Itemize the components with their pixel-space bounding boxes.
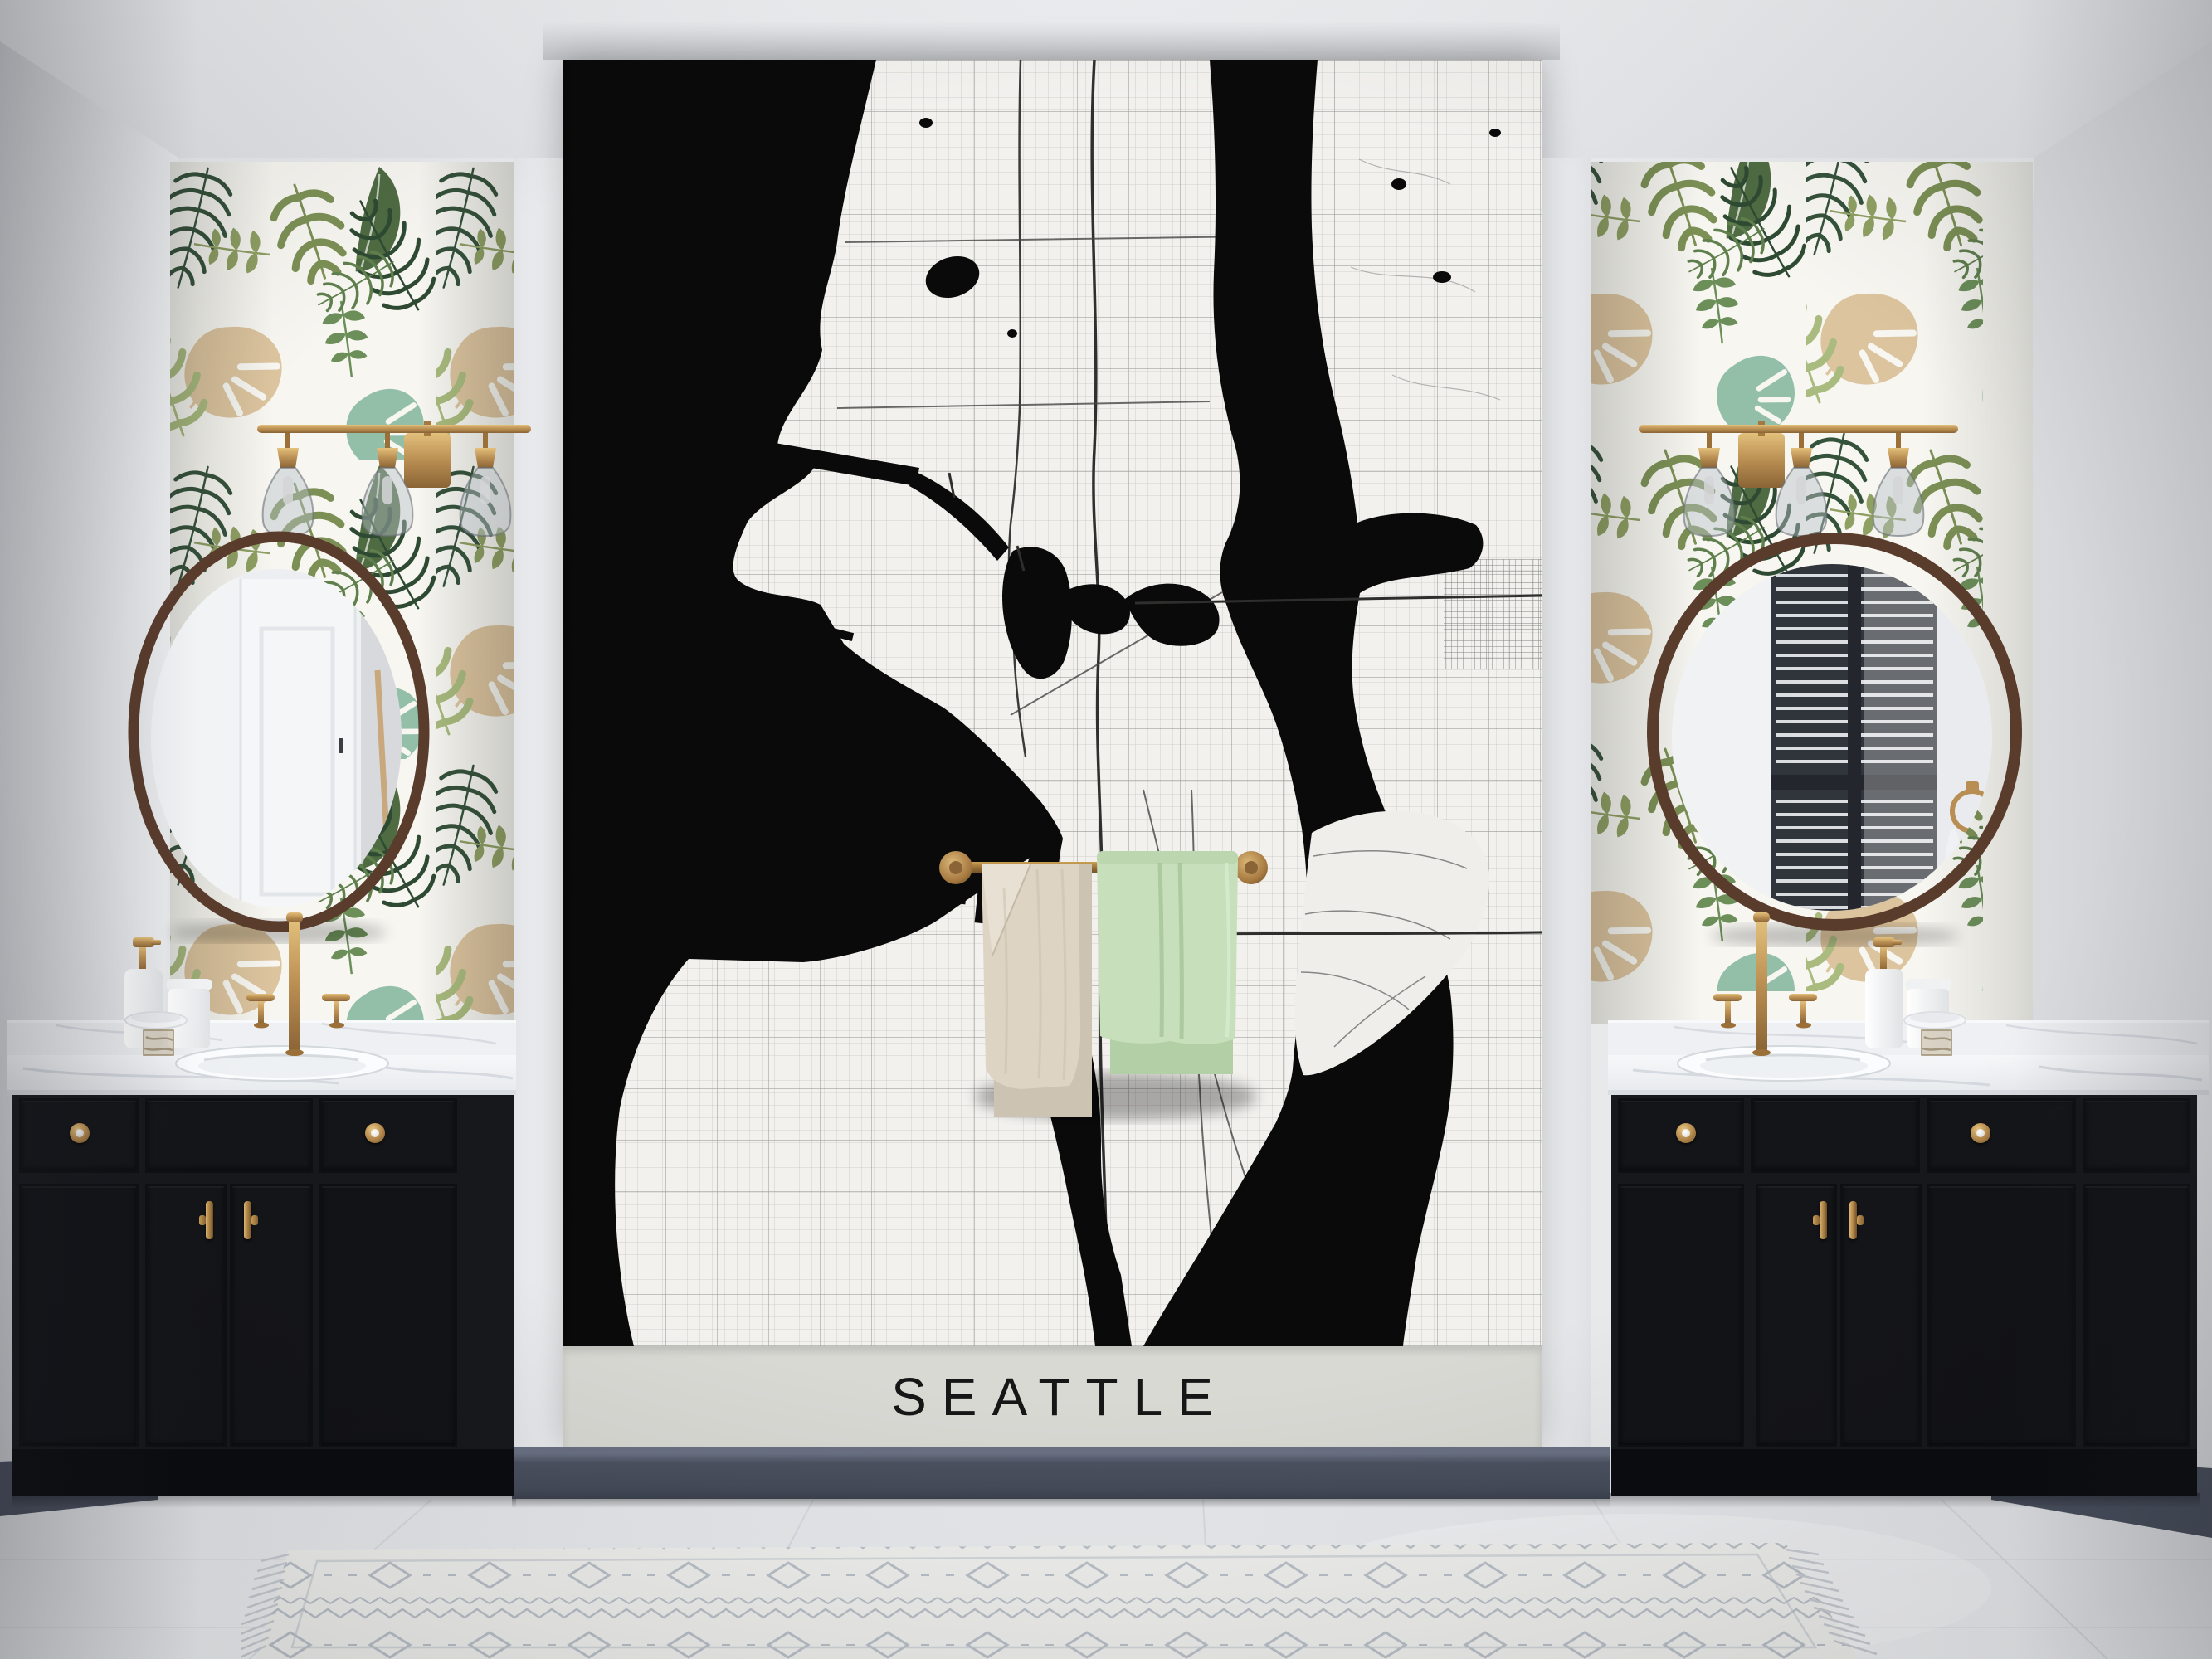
vanity-cabinet-right bbox=[1611, 1088, 2197, 1496]
side-panel bbox=[319, 1184, 457, 1447]
map-wall-baseboard bbox=[512, 1447, 1610, 1499]
map-wall-side-return-left bbox=[514, 158, 563, 1447]
seattle-map bbox=[563, 60, 1542, 1346]
door-pull bbox=[1849, 1201, 1857, 1239]
side-panel bbox=[1927, 1184, 2076, 1447]
drawer bbox=[1927, 1098, 2076, 1173]
door-pull bbox=[206, 1201, 213, 1239]
bathroom-scene: SEATTLE bbox=[0, 0, 2212, 1659]
map-wall-side-return-right bbox=[1542, 158, 1591, 1447]
sink-front-panel bbox=[145, 1098, 313, 1173]
patterned-rug bbox=[241, 1536, 1879, 1659]
cabinet-door bbox=[230, 1184, 313, 1447]
toe-kick bbox=[12, 1449, 514, 1496]
drawer-knob bbox=[1676, 1123, 1696, 1143]
cabinet-door bbox=[145, 1184, 227, 1447]
side-panel bbox=[1618, 1184, 1744, 1447]
side-panel bbox=[19, 1184, 139, 1447]
map-bellevue-downtown bbox=[1444, 559, 1542, 669]
door-pull bbox=[244, 1201, 251, 1239]
side-panel bbox=[2083, 1184, 2190, 1447]
mural-title-band: SEATTLE bbox=[563, 1346, 1542, 1447]
faucet-handle-left bbox=[1713, 994, 1742, 1029]
beige-towel bbox=[982, 864, 1092, 1117]
faucet-right bbox=[1712, 902, 1820, 1064]
drawer-knob bbox=[70, 1123, 90, 1143]
round-mirror-left bbox=[124, 529, 433, 944]
sink-front-panel bbox=[1751, 1098, 1920, 1173]
soap-dish bbox=[125, 1012, 187, 1029]
faucet-left bbox=[245, 902, 353, 1064]
faucet-handle-right bbox=[1789, 994, 1817, 1029]
towel-bar-assembly bbox=[921, 829, 1294, 1145]
mural-title: SEATTLE bbox=[891, 1366, 1228, 1428]
soap-dispenser bbox=[1865, 937, 1903, 1048]
map-wall-floor-shadow bbox=[512, 1498, 1610, 1508]
counter-accessories-left bbox=[116, 927, 228, 1062]
vanity-cabinet-left bbox=[12, 1088, 514, 1496]
ceiling-shadow-above-mural bbox=[543, 22, 1560, 60]
glass-shades bbox=[263, 433, 511, 536]
drawer-knob bbox=[365, 1123, 385, 1143]
drawer bbox=[319, 1098, 457, 1173]
counter-accessories-right bbox=[1859, 927, 1975, 1062]
faucet-handle-left bbox=[246, 994, 275, 1029]
round-mirror-right bbox=[1647, 533, 2022, 947]
faucet-handle-right bbox=[322, 994, 350, 1029]
drawer-knob bbox=[1971, 1123, 1990, 1143]
glass-shades bbox=[1684, 433, 1924, 536]
marble-tumbler bbox=[144, 1030, 173, 1055]
seattle-map-mural-wall: SEATTLE bbox=[563, 60, 1542, 1447]
drawer bbox=[2083, 1098, 2190, 1173]
faucet-spout bbox=[1752, 912, 1771, 1056]
marble-tumbler bbox=[1922, 1030, 1951, 1055]
faucet-spout bbox=[285, 912, 304, 1056]
soap-dish bbox=[1904, 1012, 1966, 1029]
toe-kick bbox=[1611, 1449, 2197, 1496]
door-pull bbox=[1820, 1201, 1827, 1239]
green-towel bbox=[1097, 851, 1238, 1074]
